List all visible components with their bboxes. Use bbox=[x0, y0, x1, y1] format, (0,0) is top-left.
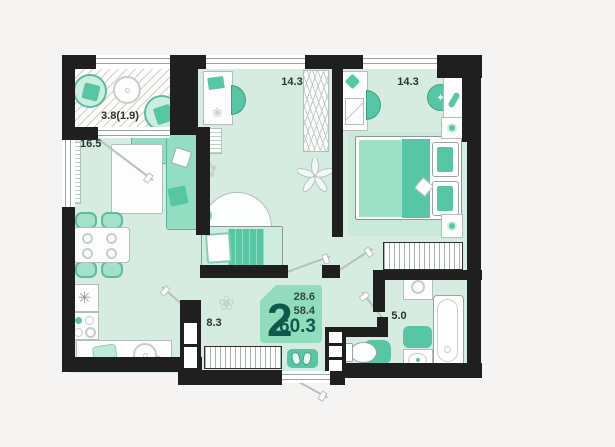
wall-segment bbox=[345, 363, 482, 378]
balcony-door-glazing bbox=[98, 127, 170, 138]
floor-plan: ❀ ❀ ✳ ❀ ✿ bbox=[0, 0, 615, 447]
nightstand-plant bbox=[447, 221, 457, 231]
shaft-cell bbox=[329, 332, 342, 343]
wall-segment bbox=[322, 265, 340, 278]
armchair-cushion bbox=[81, 82, 100, 101]
slipper bbox=[290, 351, 301, 366]
washer-door bbox=[411, 280, 425, 294]
slipper bbox=[302, 351, 313, 365]
bedroom-area-label: 14.3 bbox=[386, 77, 430, 88]
table-center bbox=[125, 88, 130, 93]
dining-chair bbox=[75, 261, 97, 278]
blanket bbox=[228, 229, 264, 267]
wardrobe bbox=[383, 242, 463, 270]
flower-decor-icon: ❀ bbox=[218, 294, 235, 314]
flower-decor-icon: ❀ bbox=[212, 106, 223, 119]
wall-segment bbox=[170, 69, 198, 135]
hob-knob bbox=[75, 317, 82, 324]
plate bbox=[82, 248, 93, 259]
room-area-label: 14.3 bbox=[270, 77, 314, 88]
burner bbox=[85, 327, 96, 338]
shoe-mat bbox=[287, 349, 318, 368]
pillow bbox=[205, 232, 232, 264]
shelf-item bbox=[447, 92, 460, 109]
burner bbox=[85, 316, 94, 325]
balcony-table bbox=[113, 76, 141, 104]
sofa-pillow bbox=[167, 185, 188, 206]
wall-segment bbox=[373, 270, 482, 280]
laptop bbox=[207, 76, 225, 90]
badge-areas: 28.6 58.4 bbox=[294, 291, 315, 319]
dining-chair bbox=[101, 261, 123, 278]
plate bbox=[106, 248, 117, 259]
balcony-area-label: 3.8(1.9) bbox=[90, 111, 150, 122]
window bbox=[363, 55, 437, 69]
shaft-cell bbox=[329, 360, 342, 371]
wall-segment bbox=[332, 69, 343, 237]
pillow bbox=[432, 142, 459, 177]
plate bbox=[106, 233, 117, 244]
wall-segment bbox=[305, 55, 363, 69]
wall-segment bbox=[373, 270, 385, 312]
bathroom-area-label: 5.0 bbox=[382, 311, 416, 322]
plate bbox=[82, 233, 93, 244]
sink-drain bbox=[416, 358, 420, 362]
desk bbox=[341, 71, 368, 131]
wall-segment bbox=[200, 265, 288, 278]
wall-segment bbox=[467, 78, 481, 375]
bath-mat bbox=[403, 326, 432, 348]
wall-segment bbox=[196, 127, 210, 235]
wall-segment bbox=[170, 55, 206, 69]
nightstand bbox=[441, 214, 463, 238]
dining-table bbox=[73, 227, 130, 263]
desk-decor bbox=[345, 74, 361, 90]
entrance-threshold bbox=[282, 371, 330, 383]
shaft-cell bbox=[329, 346, 342, 357]
pillow bbox=[432, 181, 459, 216]
desk: ❀ bbox=[203, 71, 233, 125]
balcony-armchair bbox=[73, 74, 107, 108]
shaft-cell bbox=[184, 347, 197, 368]
pillow-case bbox=[437, 186, 453, 211]
hall-closet bbox=[204, 346, 282, 369]
unit-info-badge: 28.6 58.4 2 60.3 bbox=[260, 285, 322, 343]
shaft-cell bbox=[184, 323, 197, 344]
toilet-bowl bbox=[350, 342, 377, 363]
balcony-glazing bbox=[96, 55, 170, 69]
wall-segment bbox=[178, 370, 282, 385]
wall-segment bbox=[437, 55, 482, 78]
burner bbox=[74, 328, 83, 337]
tub-drain bbox=[444, 346, 451, 353]
double-bed bbox=[355, 136, 462, 220]
window bbox=[206, 55, 305, 69]
living-area-label: 16.5 bbox=[80, 139, 101, 150]
hallway-area-label: 8.3 bbox=[198, 318, 230, 329]
nightstand-plant bbox=[447, 123, 457, 133]
window bbox=[62, 140, 75, 207]
bathtub bbox=[433, 295, 464, 369]
nightstand bbox=[441, 117, 463, 139]
badge-total-area: 60.3 bbox=[279, 317, 316, 336]
badge-area-top: 28.6 bbox=[294, 291, 315, 305]
shelf bbox=[443, 75, 464, 121]
cabinet-sketch bbox=[345, 98, 364, 125]
starfish-icon bbox=[297, 158, 333, 194]
wall-segment bbox=[62, 55, 75, 372]
pillow-case bbox=[437, 147, 453, 172]
single-bed bbox=[201, 226, 283, 269]
